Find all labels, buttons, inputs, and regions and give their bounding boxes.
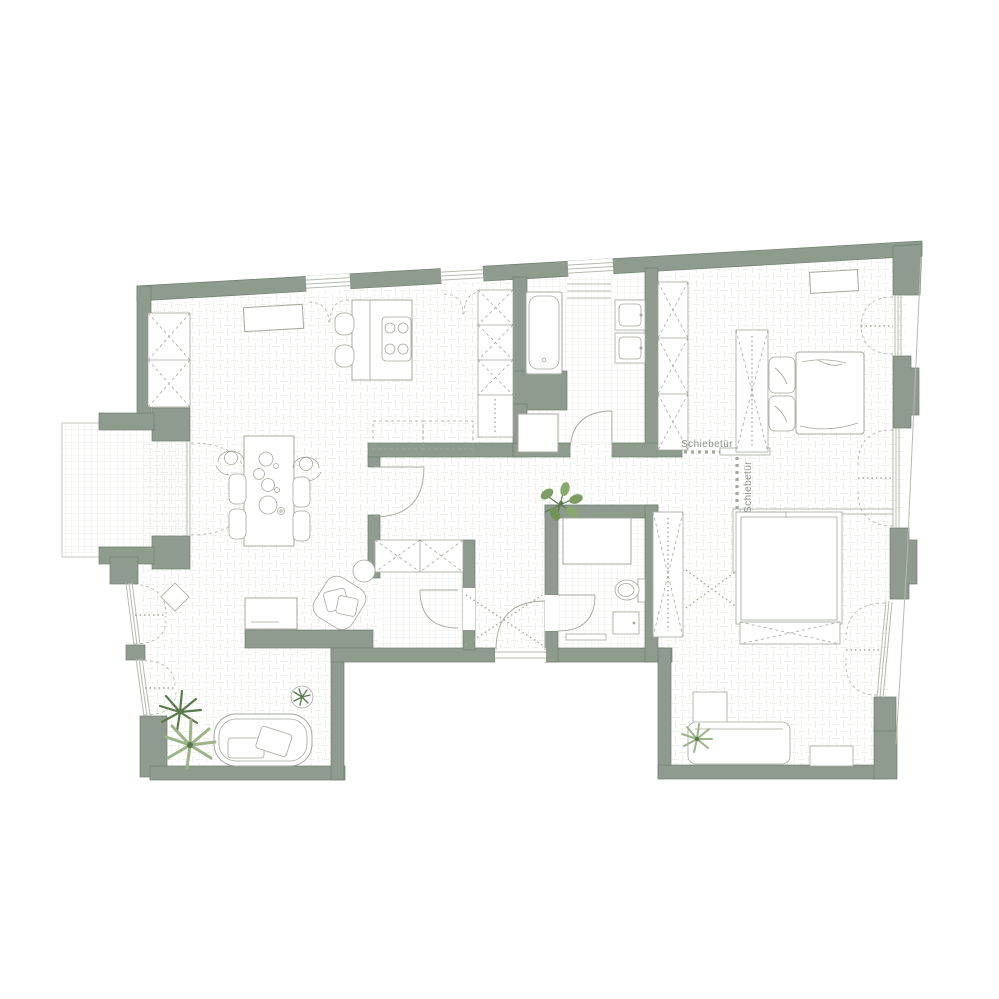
chair [229,509,246,539]
wall-left-pier-2 [126,645,145,660]
chair [229,474,246,504]
floor-mat [810,746,853,766]
sideboard [245,598,297,629]
potted-plant-living [291,686,313,708]
dresser [809,270,858,294]
wall-living-wing-right [331,648,344,780]
window-top-3 [568,259,614,278]
sink-double-1 [615,300,645,330]
wardrobe-top-left [148,313,190,407]
window-top-2 [441,266,484,284]
washer [518,414,558,452]
wash-basin [613,612,639,634]
wall-right-pier-4 [874,697,896,731]
wardrobe-bedroom2 [653,512,683,637]
wall-corner-pier-se [874,727,897,779]
cooktop [382,317,411,361]
side-table [353,560,375,582]
bar-stool-2 [335,345,354,367]
storage-room-floor [380,572,463,648]
wall-bedroom2-left [658,648,671,778]
wall-bedroom1-left [645,268,658,457]
wall-left-pier-1 [110,557,138,584]
bathtub [526,292,562,374]
wall-bath2-top [545,505,658,518]
wardrobe-kitchen-column [478,290,513,437]
wall-living-wing-bottom [150,766,345,780]
sofa [214,714,312,766]
wardrobe-hall-row [375,540,463,572]
wall-corner-pier-ne [893,244,922,295]
bed-bench [740,622,840,644]
shower [563,518,631,564]
wall-bedroom2-bottom [658,765,886,779]
wall-hall-divider-a [368,457,380,467]
wall-balcony-pier-bottom [152,536,190,569]
wall-balcony-step-top [99,413,154,430]
wall-hall-top-left [368,443,513,457]
window-top-1 [306,274,351,293]
bed-2 [736,512,842,624]
sink-double-2 [615,333,645,363]
wall-balcony-pier-top [152,408,190,441]
sliding-door-label-top: Schiebetür [681,439,733,450]
wardrobe-bedroom1-column [658,282,688,450]
bar-stool-1 [335,313,354,335]
bed-1 [769,352,864,434]
wall-bath2-left-b [545,631,558,662]
floor-plan-page: Schiebetür Schiebetür [0,0,999,999]
floor-plan-drawing: Schiebetür Schiebetür [0,0,999,999]
wardrobe-bedroom1-freestanding [736,330,768,452]
wall-living-divider [245,630,373,648]
kitchen-counter [243,304,303,331]
kitchen-island [352,300,412,380]
sliding-door-label-right: Schiebetür [743,461,754,513]
chair [293,477,310,507]
chair [293,511,310,541]
bath-shelf [566,634,606,640]
